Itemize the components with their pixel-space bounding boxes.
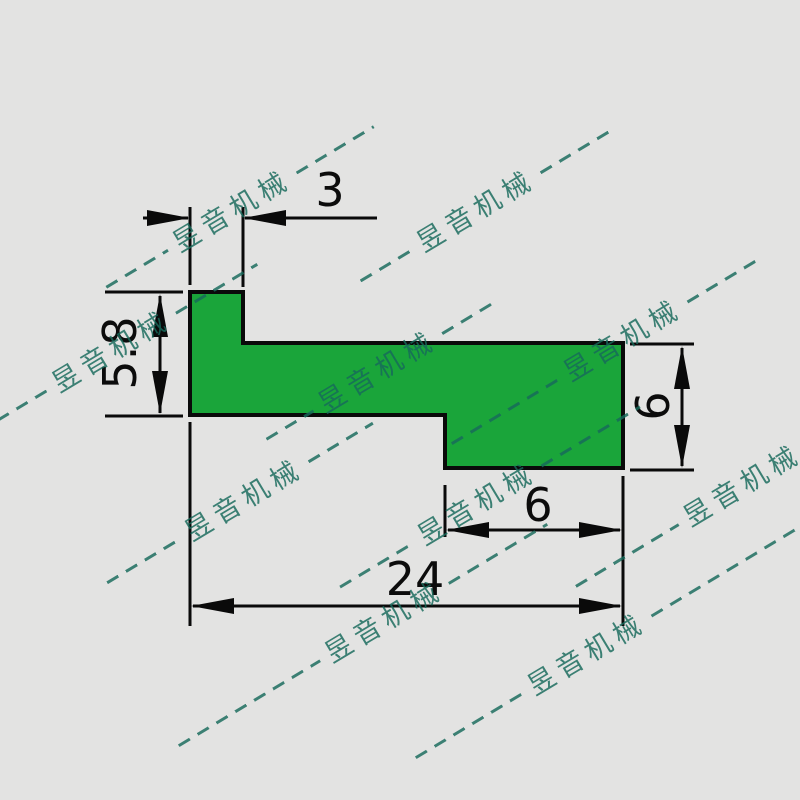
dim-label-bottom-step: 6 (523, 482, 552, 528)
arrowhead (446, 522, 489, 538)
arrowhead (147, 210, 190, 226)
arrowhead (191, 598, 234, 614)
drawing-canvas: 3 5.8 6 6 24 昱音机械 昱音机械 昱音机械 昱音机械 昱音机械 (0, 0, 800, 800)
arrowhead (152, 294, 168, 337)
arrowhead (579, 598, 622, 614)
arrowhead (674, 425, 690, 468)
arrowhead (674, 346, 690, 389)
dim-label-top-width: 3 (315, 167, 344, 213)
dim-label-right-height: 6 (630, 391, 676, 420)
dim-label-total-width: 24 (386, 556, 445, 602)
profile-shape (190, 292, 623, 468)
arrowhead (579, 522, 622, 538)
profile-drawing (0, 0, 800, 800)
arrowhead (152, 371, 168, 414)
dim-label-left-height: 5.8 (97, 316, 143, 389)
arrowhead (243, 210, 286, 226)
dim-left-height (152, 294, 168, 414)
